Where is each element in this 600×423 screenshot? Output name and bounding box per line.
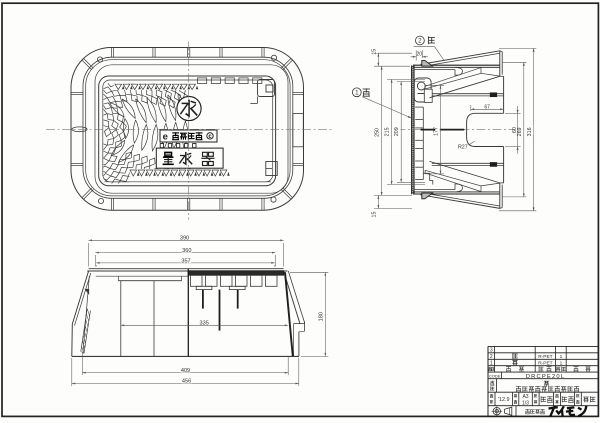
svg-text:15: 15 [371, 49, 377, 55]
svg-text:180: 180 [319, 312, 325, 321]
svg-text:R-PET: R-PET [538, 354, 552, 360]
svg-text:DRCPE20L: DRCPE20L [526, 374, 566, 380]
svg-text:2: 2 [418, 38, 422, 45]
svg-text:1: 1 [355, 90, 359, 97]
svg-text:67: 67 [484, 105, 490, 111]
svg-text:1: 1 [560, 361, 563, 367]
svg-text:1/3: 1/3 [522, 400, 529, 406]
svg-text:209: 209 [394, 127, 400, 136]
svg-text:357: 357 [181, 258, 190, 264]
svg-text:A3: A3 [522, 394, 528, 400]
svg-text:215: 215 [385, 127, 391, 136]
svg-text:2: 2 [490, 354, 493, 360]
svg-text:1: 1 [560, 354, 563, 360]
svg-text:1: 1 [490, 361, 493, 367]
svg-text:456: 456 [182, 379, 191, 385]
svg-text:R27: R27 [458, 144, 468, 150]
svg-text:CODE: CODE [489, 374, 501, 379]
svg-text:R-PET: R-PET [538, 361, 552, 367]
svg-text:316: 316 [527, 127, 533, 136]
svg-text:335: 335 [200, 320, 209, 326]
svg-text:360: 360 [182, 248, 191, 254]
svg-text:390: 390 [180, 235, 189, 241]
svg-text:269: 269 [517, 127, 523, 136]
svg-text:'12.9: '12.9 [498, 397, 510, 403]
svg-text:15: 15 [371, 212, 377, 218]
svg-text:20: 20 [417, 51, 423, 57]
svg-text:3: 3 [490, 348, 493, 354]
svg-text:409: 409 [181, 368, 190, 374]
svg-text:250: 250 [374, 128, 380, 137]
svg-text:e: e [163, 132, 168, 143]
svg-text:177: 177 [434, 127, 440, 136]
